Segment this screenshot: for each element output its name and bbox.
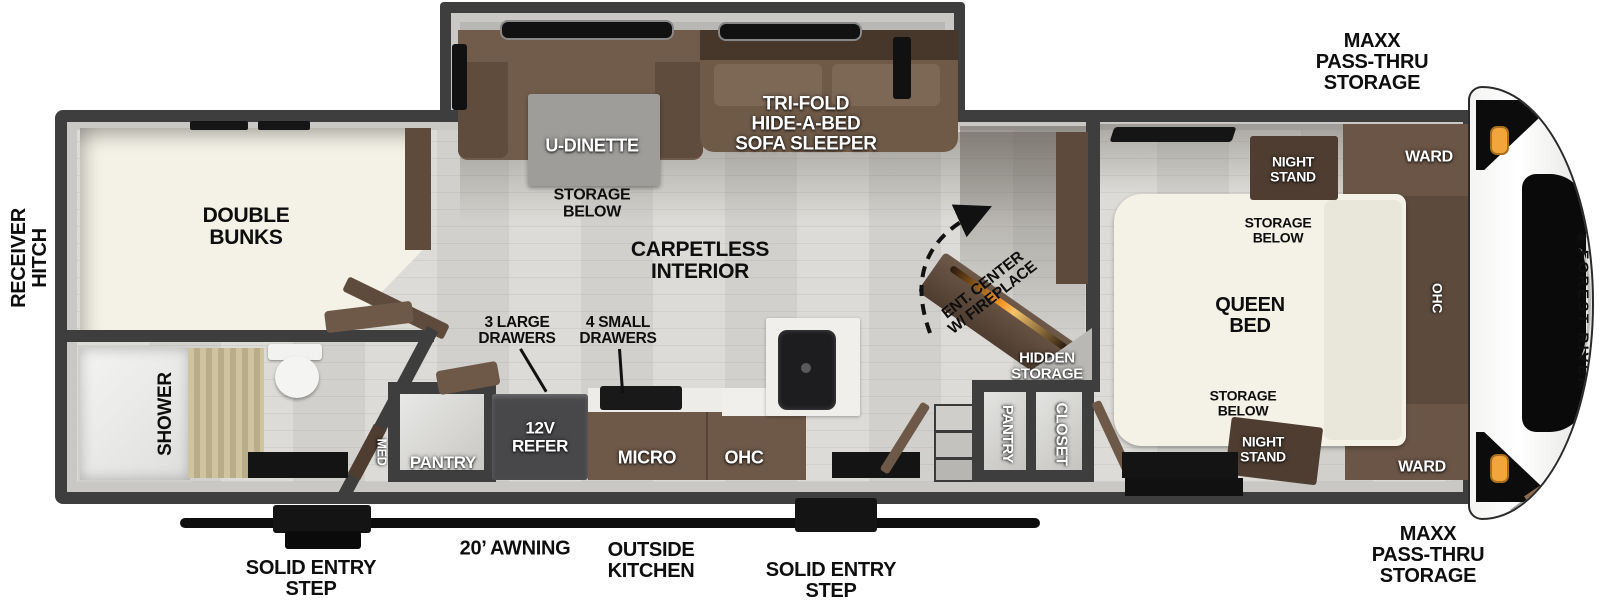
bunk-window <box>190 121 248 130</box>
u-dinette-arm <box>655 62 703 158</box>
large-drawers-label: 3 LARGE DRAWERS <box>478 315 555 347</box>
forest-river-logo: ◈ <box>1576 232 1590 250</box>
front-cap: ◈ FOREST RIVER <box>1468 86 1594 520</box>
trifold-sofa-label: TRI-FOLD HIDE-A-BED SOFA SLEEPER <box>735 94 876 153</box>
entry-step-right-label: SOLID ENTRY STEP <box>766 560 896 602</box>
entry-step-left-label: SOLID ENTRY STEP <box>246 558 376 600</box>
maxx-storage-top-label: MAXX PASS-THRU STORAGE <box>1316 31 1429 93</box>
bed-storage-bottom-label: STORAGE BELOW <box>1210 388 1277 417</box>
closet-label: CLOSET <box>1052 402 1069 465</box>
med-cabinet-label: MED <box>375 439 388 466</box>
receiver-hitch-label: RECEIVER HITCH <box>9 208 51 308</box>
micro-label: MICRO <box>618 449 677 468</box>
sink-faucet <box>801 363 811 373</box>
refrigerator-label: 12V REFER <box>512 419 568 454</box>
cap-decal-black-bottom <box>1476 432 1558 502</box>
hidden-storage-label: HIDDEN STORAGE <box>1011 350 1083 381</box>
forest-river-text: FOREST RIVER <box>1575 250 1592 391</box>
exterior-step-left <box>273 505 371 533</box>
bedroom-window <box>1110 127 1237 142</box>
ward-bottom-label: WARD <box>1398 460 1446 477</box>
bedroom-ohc-label: OHC <box>1430 283 1445 313</box>
queen-bed-head <box>1324 200 1402 440</box>
exterior-step-right <box>795 498 877 532</box>
micro-cabinet <box>588 412 708 480</box>
bunk-window <box>258 121 310 130</box>
cooktop <box>600 386 682 410</box>
outside-kitchen-label: OUTSIDE KITCHEN <box>608 540 695 582</box>
bath-divider-wall <box>62 330 434 342</box>
dinette-storage-label: STORAGE BELOW <box>554 187 631 220</box>
awning-label: 20’ AWNING <box>460 539 571 560</box>
night-stand-top-label: NIGHT STAND <box>1270 154 1316 183</box>
ward-top-label: WARD <box>1405 150 1453 167</box>
forest-river-wordmark: ◈ FOREST RIVER <box>1575 232 1592 390</box>
pantry-right-label: PANTRY <box>999 405 1015 463</box>
carpetless-label: CARPETLESS INTERIOR <box>631 239 769 283</box>
slideout-side-window <box>893 37 911 99</box>
slideout-skylight <box>500 20 674 40</box>
kitchen-ohc-cabinet <box>708 412 806 480</box>
night-stand-bottom-label: NIGHT STAND <box>1240 434 1286 463</box>
small-drawers-label: 4 SMALL DRAWERS <box>579 315 656 347</box>
u-dinette-label: U-DINETTE <box>545 137 638 156</box>
bath-door-mat <box>248 452 348 478</box>
bunk-room-label: DOUBLE BUNKS <box>203 205 290 249</box>
queen-bed-label: QUEEN BED <box>1215 295 1285 337</box>
slideout-side-window <box>452 44 467 110</box>
toilet-bowl <box>275 356 319 398</box>
bunk-wardrobe <box>405 128 431 250</box>
slideout-skylight <box>718 22 862 41</box>
maxx-storage-bottom-label: MAXX PASS-THRU STORAGE <box>1372 524 1485 586</box>
floorplan-canvas: DOUBLE BUNKS SHOWER MED PANTRY 12V REFER… <box>0 0 1600 605</box>
pantry-left-label: PANTRY <box>410 454 476 472</box>
exterior-step-left-lower <box>285 531 361 549</box>
cap-marker-light <box>1490 454 1509 483</box>
bedroom-door-mat <box>1122 452 1238 478</box>
partition-cabinet <box>1056 132 1088 284</box>
cap-decal-black-top <box>1476 100 1558 170</box>
cap-marker-light <box>1490 126 1509 155</box>
bedroom-entry-step <box>1125 478 1243 496</box>
bed-storage-top-label: STORAGE BELOW <box>1245 215 1312 244</box>
shower-label: SHOWER <box>156 372 176 456</box>
entry-door-mat <box>832 452 920 478</box>
kitchen-ohc-label: OHC <box>724 449 763 468</box>
